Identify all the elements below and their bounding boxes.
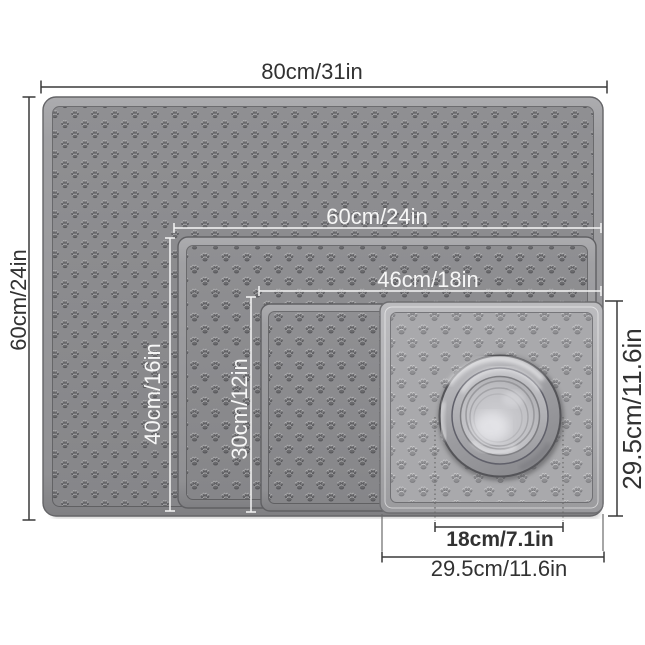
- svg-text:46cm/18in: 46cm/18in: [377, 267, 479, 292]
- svg-text:40cm/16in: 40cm/16in: [140, 343, 165, 445]
- svg-text:60cm/24in: 60cm/24in: [326, 204, 428, 229]
- svg-text:80cm/31in: 80cm/31in: [261, 59, 363, 84]
- svg-text:30cm/12in: 30cm/12in: [227, 358, 252, 460]
- svg-text:18cm/7.1in: 18cm/7.1in: [446, 528, 553, 551]
- svg-text:60cm/24in: 60cm/24in: [6, 249, 31, 351]
- svg-text:29.5cm/11.6in: 29.5cm/11.6in: [617, 328, 645, 489]
- svg-text:29.5cm/11.6in: 29.5cm/11.6in: [431, 556, 568, 581]
